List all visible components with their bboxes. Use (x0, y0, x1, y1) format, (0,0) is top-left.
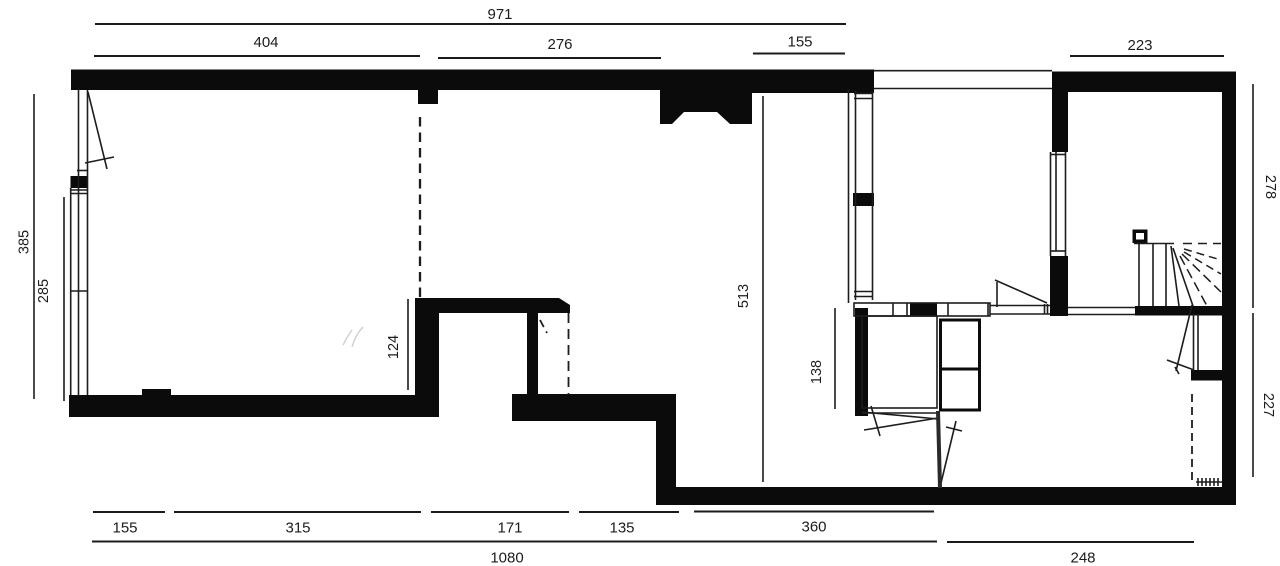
svg-text:227: 227 (1260, 393, 1276, 417)
svg-text:138: 138 (809, 360, 825, 384)
svg-text:171: 171 (497, 520, 522, 537)
svg-text:285: 285 (36, 279, 52, 303)
svg-text:404: 404 (253, 34, 278, 51)
svg-text:360: 360 (801, 519, 826, 536)
svg-text:513: 513 (736, 284, 752, 308)
svg-text:315: 315 (285, 520, 310, 537)
svg-text:276: 276 (547, 36, 572, 53)
svg-text:155: 155 (787, 34, 812, 51)
svg-text:155: 155 (112, 520, 137, 537)
svg-text:223: 223 (1127, 37, 1152, 54)
svg-text:385: 385 (17, 230, 33, 254)
svg-text:124: 124 (386, 335, 402, 359)
svg-text:278: 278 (1262, 175, 1278, 199)
svg-text:1080: 1080 (490, 550, 523, 566)
svg-text:971: 971 (487, 6, 512, 23)
svg-text:248: 248 (1070, 550, 1095, 566)
svg-text:135: 135 (609, 520, 634, 537)
